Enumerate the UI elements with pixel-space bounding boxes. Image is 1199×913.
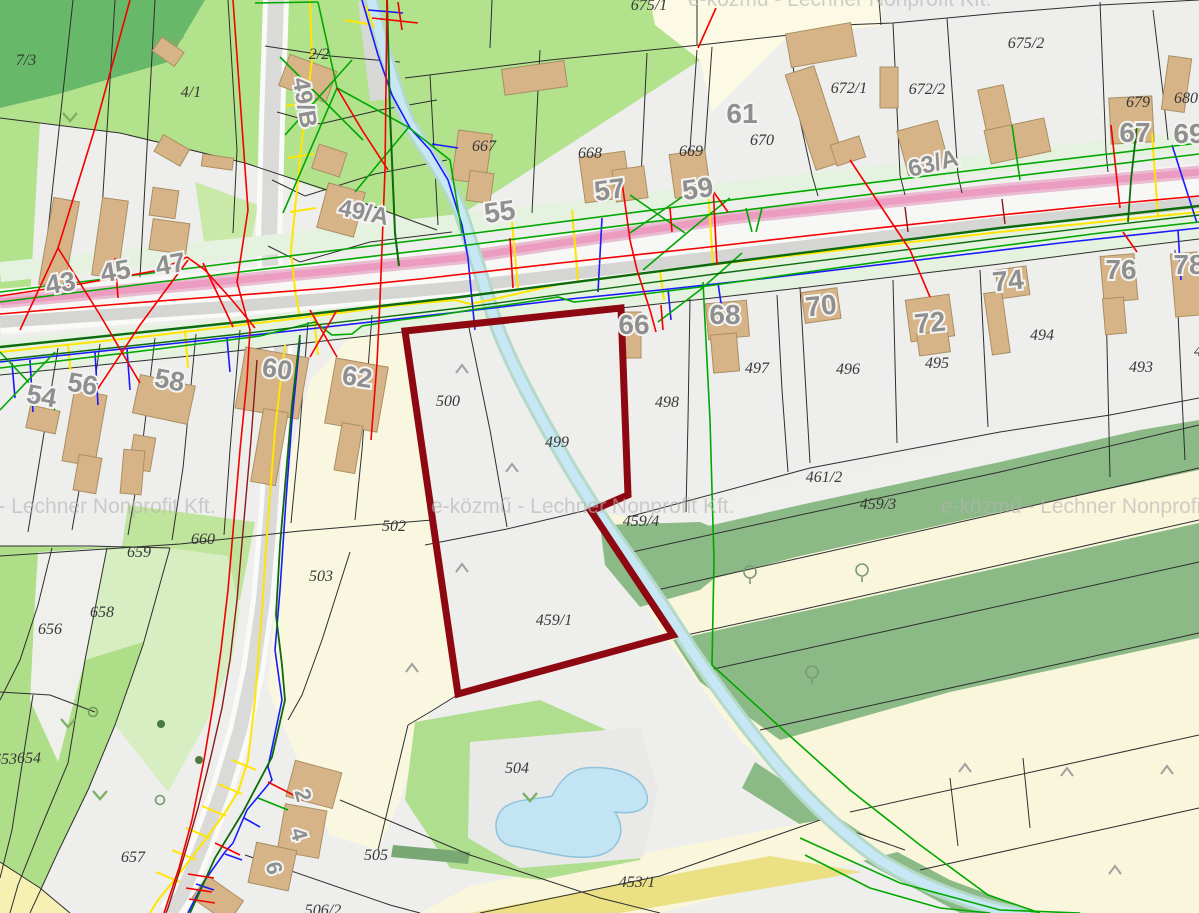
watermark-text: e-közmű - Lechner Nonprofit Kft. <box>688 0 991 11</box>
parcel-number-label: 658 <box>90 604 114 621</box>
watermark-text: e-közmű - Lechner Nonprofit Kft. <box>431 495 734 518</box>
house-number-label: 78 <box>1173 249 1199 280</box>
house-number-label: 62 <box>340 360 374 394</box>
cadastral-map[interactable]: 43454749/B49/A54565860625557596163/A6667… <box>0 0 1199 913</box>
parcel-number-label: 495 <box>925 355 949 372</box>
house-number-label: 72 <box>913 306 947 340</box>
parcel-number-label: 657 <box>121 849 146 866</box>
parcel-number-label: 459/3 <box>860 496 896 513</box>
parcel-number-label: 461/2 <box>806 469 842 486</box>
parcel-number-label: 506/2 <box>305 902 341 913</box>
parcel-number-label: 672/2 <box>909 81 945 98</box>
parcel-number-label: 493 <box>1129 359 1153 376</box>
parcel-number-label: 453/1 <box>619 874 655 891</box>
house-number-label: 69 <box>1173 118 1199 149</box>
parcel-number-label: 504 <box>505 760 529 777</box>
house-number-label: 67 <box>1119 117 1150 148</box>
parcel-number-label: 669 <box>679 143 703 160</box>
parcel-number-label: 670 <box>750 132 774 149</box>
parcel-number-label: 654 <box>17 750 41 767</box>
parcel-number-label: 499 <box>545 434 569 451</box>
parcel-number-label: 505 <box>364 847 388 864</box>
house-number-label: 43 <box>43 266 78 301</box>
parcel-number-label: 675/1 <box>631 0 667 14</box>
house-number-label: 47 <box>153 247 188 282</box>
parcel-number-label: 4/1 <box>181 84 201 101</box>
parcel-number-label: 675/2 <box>1008 35 1044 52</box>
house-number-label: 66 <box>618 309 649 340</box>
house-number-label: 60 <box>260 352 294 386</box>
cadastral-map-viewport[interactable]: 43454749/B49/A54565860625557596163/A6667… <box>0 0 1199 913</box>
watermark-text: e-közmű - Lechner Nonprofit Kft. <box>941 495 1199 518</box>
house-number-label: 68 <box>709 299 740 330</box>
house-number-label: 76 <box>1105 254 1136 285</box>
parcel-number-label: 2/2 <box>309 46 329 63</box>
house-number-label: 57 <box>592 172 627 207</box>
house-number-label: 59 <box>680 171 715 206</box>
parcel-number-label: 656 <box>38 621 62 638</box>
parcel-number-label: 492 <box>1194 343 1199 360</box>
parcel-number-label: 497 <box>745 360 770 377</box>
parcel-number-label: 494 <box>1030 327 1054 344</box>
house-number-label: 45 <box>98 254 133 289</box>
house-number-label: 70 <box>804 289 838 323</box>
parcel-number-label: 659 <box>127 544 151 561</box>
parcel-number-label: 7/3 <box>16 52 36 69</box>
house-number-label: 56 <box>65 367 100 402</box>
house-number-label: 55 <box>482 194 517 229</box>
parcel-number-label: 660 <box>191 531 215 548</box>
parcel-number-label: 680 <box>1174 90 1198 107</box>
parcel-number-label: 500 <box>436 393 460 410</box>
watermark-text: e-közmű - Lechner Nonprofit Kft. <box>0 495 215 518</box>
parcel-number-label: 672/1 <box>831 80 867 97</box>
parcel-number-label: 653 <box>0 751 17 768</box>
parcel-number-label: 496 <box>836 361 860 378</box>
parcel-number-label: 459/1 <box>536 612 572 629</box>
house-number-label: 61 <box>726 98 757 129</box>
parcel-number-label: 503 <box>309 568 333 585</box>
parcel-number-label: 502 <box>382 518 406 535</box>
parcel-number-label: 679 <box>1126 94 1150 111</box>
parcel-number-label: 667 <box>472 138 497 155</box>
parcel-number-label: 668 <box>578 145 602 162</box>
house-number-label: 58 <box>152 363 187 398</box>
house-number-label: 74 <box>991 263 1026 297</box>
parcel-number-label: 498 <box>655 394 679 411</box>
house-number-label: 54 <box>24 379 59 414</box>
